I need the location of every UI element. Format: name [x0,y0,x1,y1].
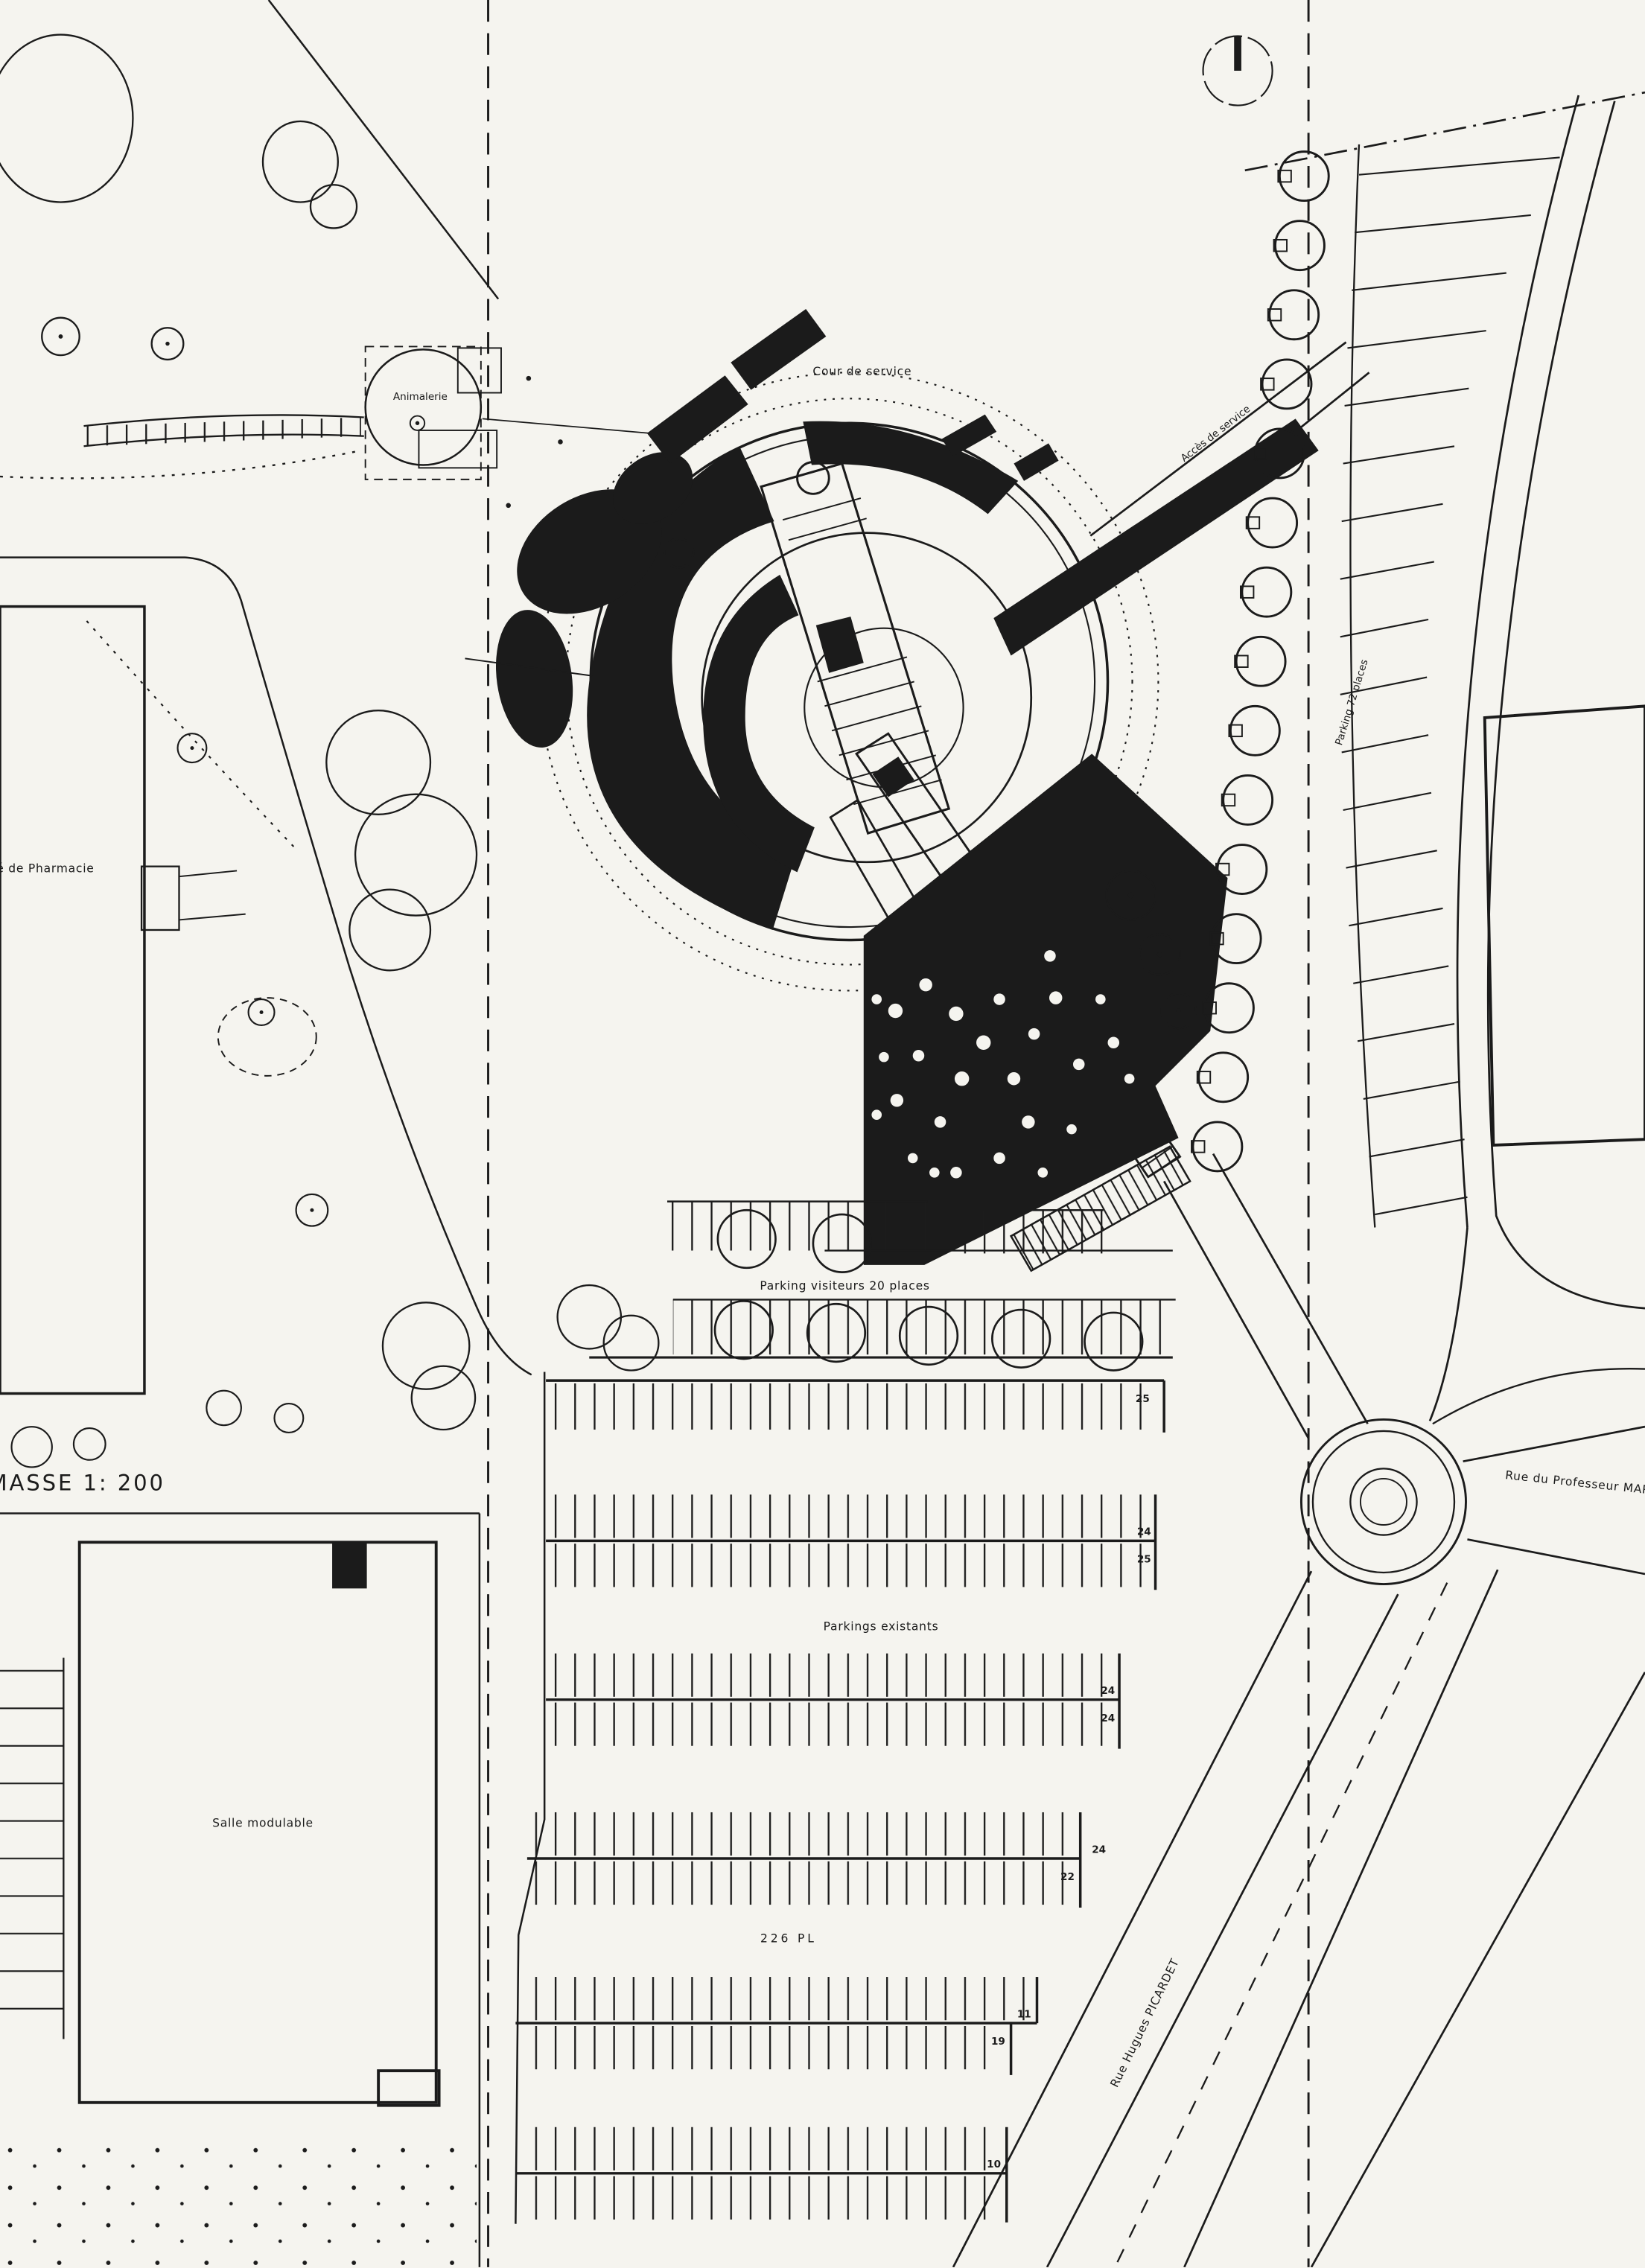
site-plan-drawing: Animalerie té de Pharmacie [0,0,1645,2267]
row-count: 24 [1101,1713,1115,1724]
total-places-label: 226 PL [760,1932,817,1946]
animalerie-label: Animalerie [393,391,448,403]
row-count: 19 [991,2036,1005,2048]
gravel-stipple [0,2134,477,2267]
row-count: 24 [1137,1526,1151,1538]
row-count: 25 [1136,1393,1150,1405]
site-plan-sheet: Animalerie té de Pharmacie [0,0,1645,2267]
row-count: 22 [1060,1871,1075,1883]
row-count: 11 [1017,2008,1031,2020]
plan-scale-title: MASSE 1: 200 [0,1470,165,1495]
parking-visiteurs-label: Parking visiteurs 20 places [760,1279,929,1293]
west-stalls [0,1660,63,2039]
salle-modulable-label: Salle modulable [212,1816,314,1829]
row-count: 10 [987,2159,1001,2170]
row-count: 25 [1137,1553,1151,1565]
pharmacie-label: té de Pharmacie [0,861,95,875]
paper-background [0,0,1645,2267]
row-count: 24 [1092,1844,1106,1856]
row-count: 24 [1101,1685,1115,1697]
parkings-existants-label: Parkings existants [824,1620,939,1634]
cour-de-service-label: Cour de service [812,365,911,378]
